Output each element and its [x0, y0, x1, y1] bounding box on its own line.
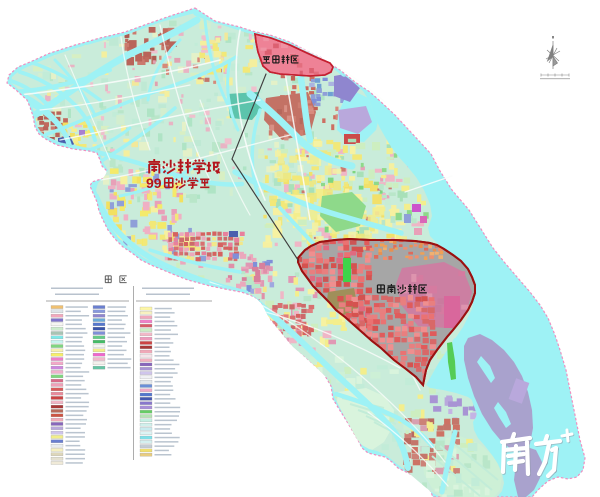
- svg-text:99: 99: [146, 175, 162, 191]
